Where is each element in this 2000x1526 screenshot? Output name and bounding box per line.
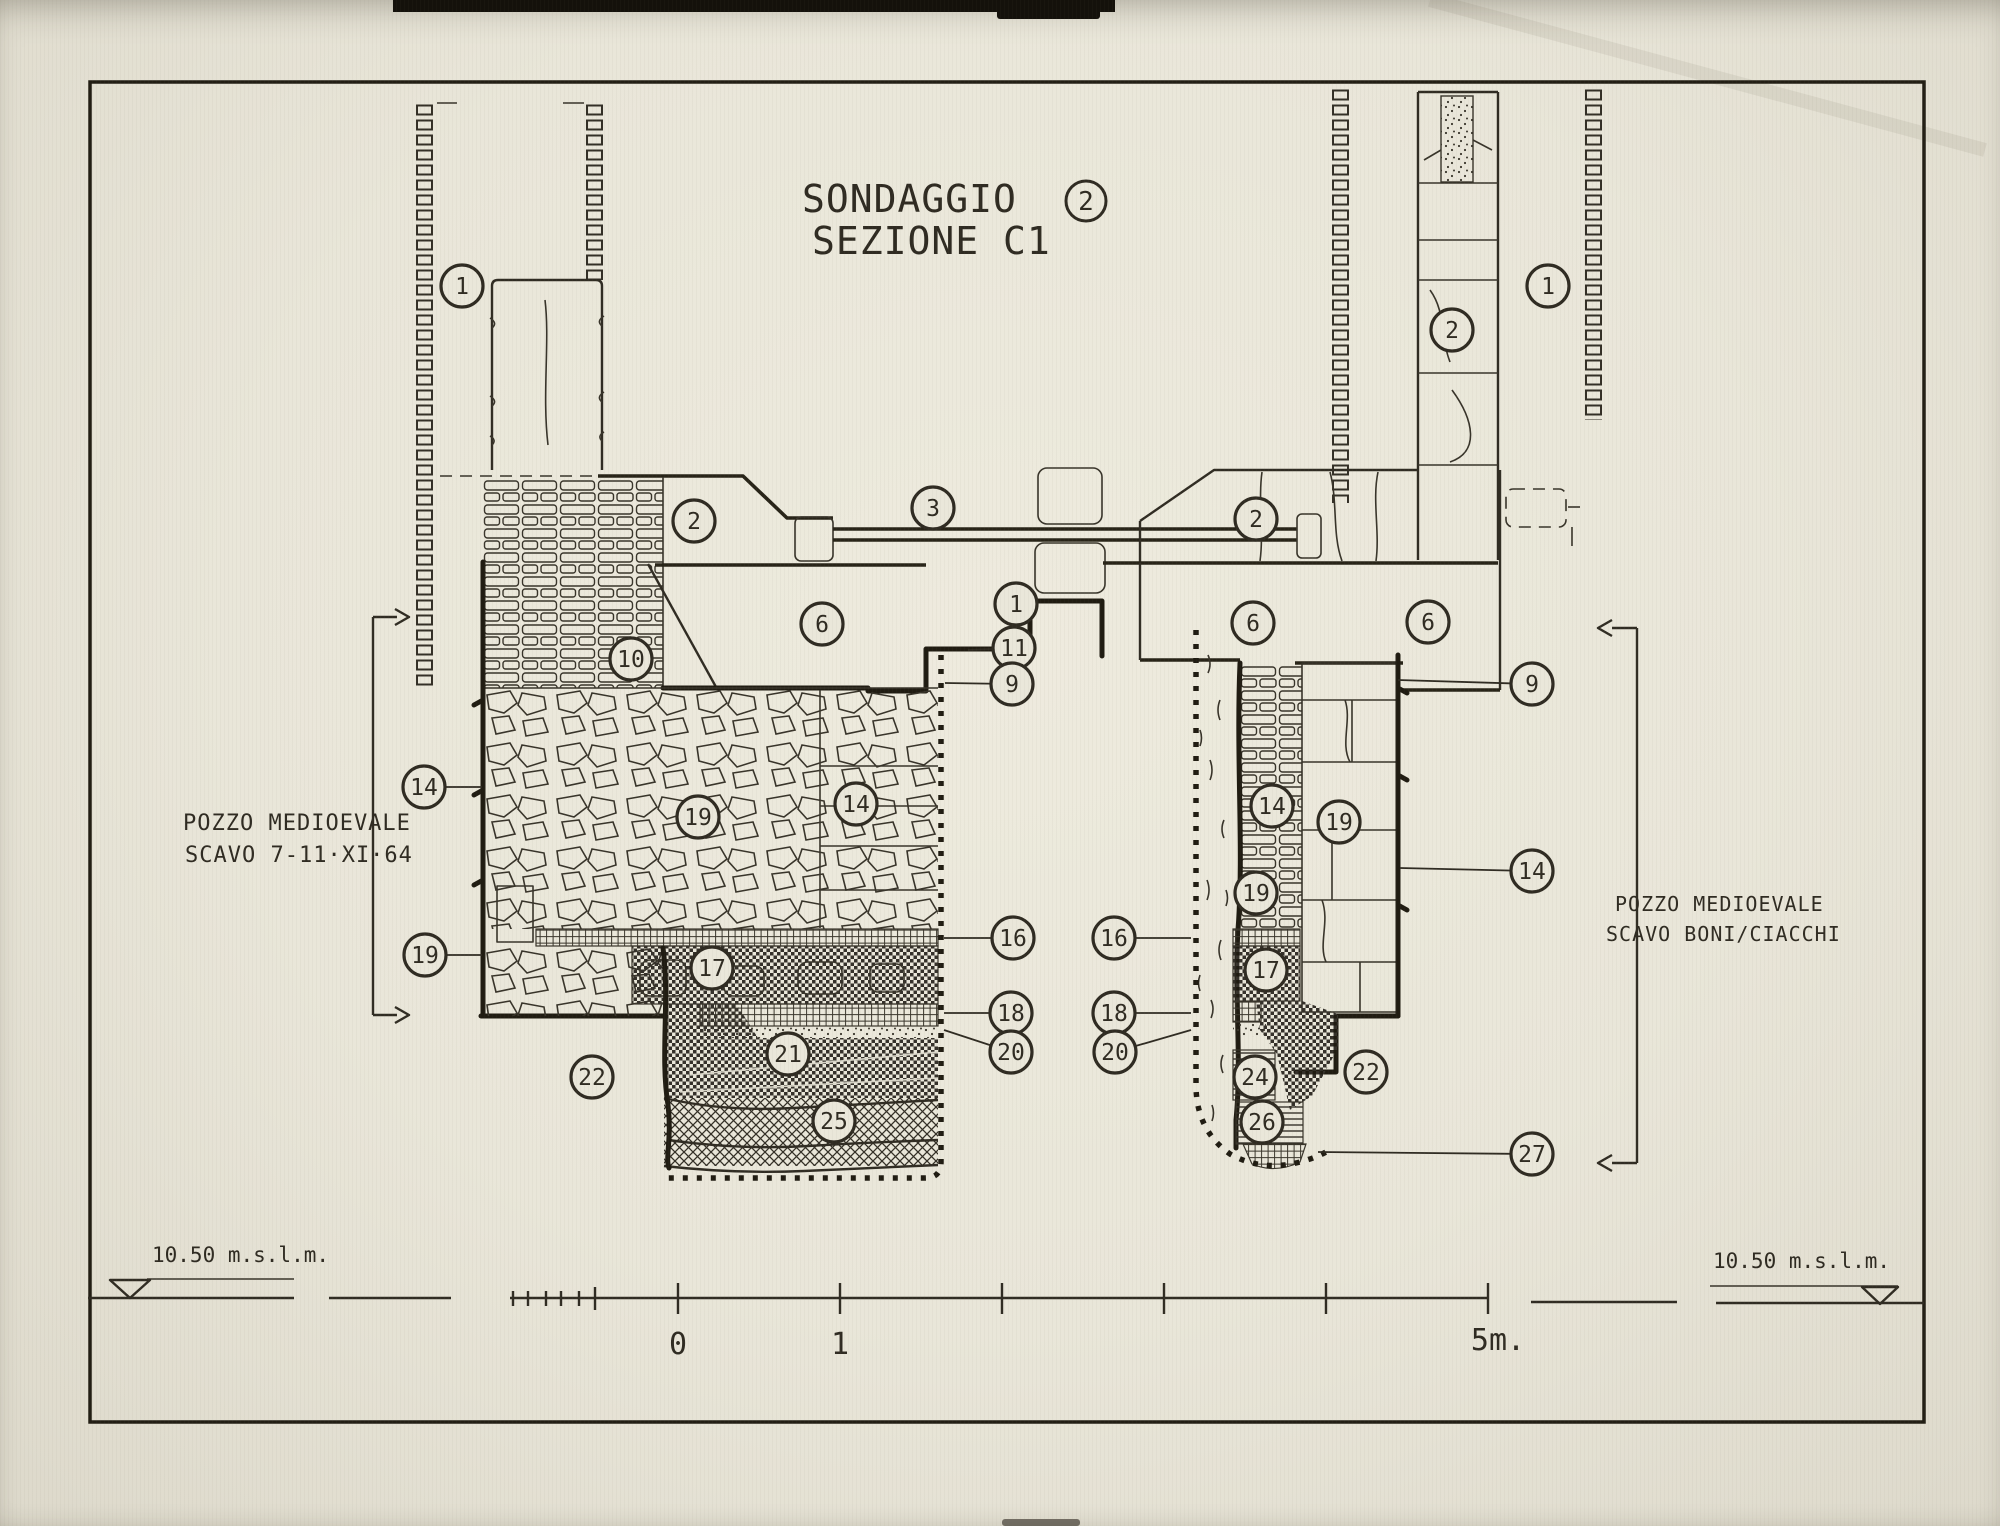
border-frame — [90, 82, 1924, 1422]
svg-text:20: 20 — [997, 1040, 1025, 1066]
title-line1: SONDAGGIO — [802, 177, 1017, 221]
callout-19: 19 — [677, 796, 719, 838]
svg-text:24: 24 — [1241, 1065, 1269, 1091]
scale-one-label: 1 — [831, 1327, 849, 1362]
svg-text:22: 22 — [1352, 1060, 1380, 1086]
svg-text:2: 2 — [687, 509, 701, 535]
right-note-line1: POZZO MEDIOEVALE — [1615, 892, 1824, 916]
callout-18: 18 — [944, 992, 1032, 1034]
svg-text:1: 1 — [455, 274, 469, 300]
svg-text:14: 14 — [842, 792, 870, 818]
callout-24: 24 — [1234, 1056, 1276, 1098]
callout-1: 1 — [1527, 265, 1569, 307]
section-drawing: 10.50 m.s.l.m. 10.50 m.s.l.m. 0 1 5m. SO… — [0, 0, 2000, 1526]
svg-text:14: 14 — [410, 775, 438, 801]
left-well-note: POZZO MEDIOEVALE SCAVO 7-11·XI·64 — [183, 811, 413, 868]
left-pit-strata — [483, 886, 938, 1172]
svg-text:16: 16 — [999, 926, 1027, 952]
callout-27: 27 — [1318, 1133, 1553, 1175]
callout-25: 25 — [813, 1100, 855, 1142]
callout-14: 14 — [835, 783, 877, 825]
drawing-sheet: 10.50 m.s.l.m. 10.50 m.s.l.m. 0 1 5m. SO… — [0, 0, 2000, 1526]
svg-text:17: 17 — [698, 956, 726, 982]
scale-five-label: 5m. — [1471, 1323, 1525, 1358]
callout-14: 14 — [1251, 785, 1293, 827]
callout-3: 3 — [912, 487, 954, 529]
callout-20: 20 — [1094, 1030, 1191, 1073]
svg-text:19: 19 — [1325, 810, 1353, 836]
svg-text:21: 21 — [774, 1042, 802, 1068]
callout-22: 22 — [571, 1056, 613, 1098]
datum-left-label: 10.50 m.s.l.m. — [152, 1243, 329, 1267]
svg-text:14: 14 — [1258, 794, 1286, 820]
callout-2: 2 — [673, 500, 715, 542]
callout-19: 19 — [404, 934, 482, 976]
callout-26: 26 — [1241, 1101, 1283, 1143]
left-note-line2: SCAVO 7-11·XI·64 — [185, 843, 413, 868]
callout-21: 21 — [767, 1033, 809, 1075]
svg-text:9: 9 — [1005, 672, 1019, 698]
callout-1: 1 — [441, 265, 483, 307]
datum-right: 10.50 m.s.l.m. — [1531, 1249, 1924, 1304]
svg-text:1: 1 — [1541, 274, 1555, 300]
callout-14: 14 — [403, 766, 482, 808]
callout-18: 18 — [1093, 992, 1191, 1034]
svg-text:19: 19 — [411, 943, 439, 969]
callout-20: 20 — [944, 1030, 1032, 1073]
scale-zero-label: 0 — [669, 1327, 687, 1362]
callout-2: 2 — [1235, 498, 1277, 540]
callout-16: 16 — [1093, 917, 1191, 959]
svg-text:14: 14 — [1518, 859, 1546, 885]
svg-text:25: 25 — [820, 1109, 848, 1135]
datum-left: 10.50 m.s.l.m. — [88, 1243, 451, 1298]
datum-right-label: 10.50 m.s.l.m. — [1713, 1249, 1890, 1273]
callout-17: 17 — [1245, 949, 1287, 991]
svg-text:26: 26 — [1248, 1110, 1276, 1136]
callout-19: 19 — [1318, 801, 1360, 843]
svg-text:2: 2 — [1249, 507, 1263, 533]
svg-text:6: 6 — [815, 612, 829, 638]
callout-6: 6 — [1232, 602, 1274, 644]
svg-text:1: 1 — [1009, 592, 1023, 618]
svg-text:17: 17 — [1252, 958, 1280, 984]
svg-text:10: 10 — [617, 647, 645, 673]
right-note-line2: SCAVO BONI/CIACCHI — [1606, 922, 1841, 946]
callout-9: 9 — [945, 663, 1033, 705]
right-well-note: POZZO MEDIOEVALE SCAVO BONI/CIACCHI — [1606, 892, 1841, 946]
svg-text:22: 22 — [578, 1065, 606, 1091]
callout-9: 9 — [1398, 663, 1553, 705]
svg-text:27: 27 — [1518, 1142, 1546, 1168]
callout-6: 6 — [1407, 601, 1449, 643]
title-line2: SEZIONE C1 — [812, 219, 1051, 263]
svg-text:6: 6 — [1421, 610, 1435, 636]
svg-text:16: 16 — [1100, 926, 1128, 952]
scale-bar: 0 1 5m. — [510, 1283, 1525, 1362]
callout-16: 16 — [944, 917, 1034, 959]
svg-text:3: 3 — [926, 496, 940, 522]
svg-text:18: 18 — [997, 1001, 1025, 1027]
svg-text:9: 9 — [1525, 672, 1539, 698]
left-note-line1: POZZO MEDIOEVALE — [183, 811, 411, 836]
title-block: SONDAGGIO 2 SEZIONE C1 — [802, 177, 1106, 263]
svg-text:19: 19 — [684, 805, 712, 831]
callout-14: 14 — [1400, 850, 1553, 892]
svg-text:19: 19 — [1242, 881, 1270, 907]
callout-2: 2 — [1431, 309, 1473, 351]
right-wall — [1140, 563, 1500, 1169]
callout-1: 1 — [995, 583, 1037, 625]
middle-band — [598, 468, 1500, 690]
callout-6: 6 — [801, 603, 843, 645]
callout-22: 22 — [1345, 1051, 1387, 1093]
callout-10: 10 — [610, 638, 652, 680]
callout-19: 19 — [1235, 872, 1277, 914]
svg-text:6: 6 — [1246, 611, 1260, 637]
callout-17: 17 — [691, 947, 733, 989]
svg-text:2: 2 — [1445, 318, 1459, 344]
svg-text:18: 18 — [1100, 1001, 1128, 1027]
title-badge: 2 — [1078, 187, 1094, 217]
svg-text:11: 11 — [1000, 636, 1028, 662]
svg-text:20: 20 — [1101, 1040, 1129, 1066]
